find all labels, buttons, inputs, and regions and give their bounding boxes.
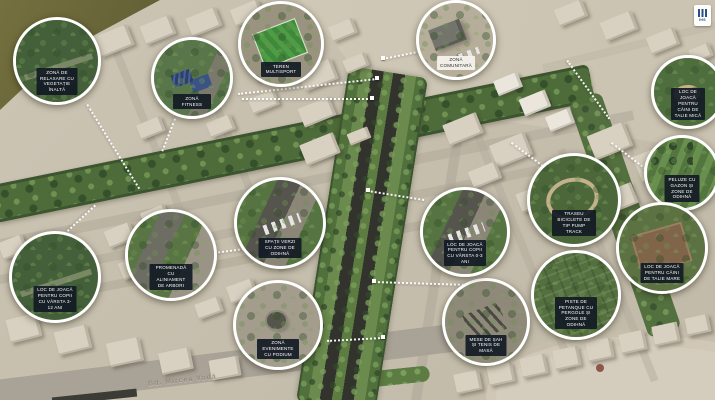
callout-label: ZONĂ DE RELAXARE CU VEGETAȚIE ÎNALTĂ	[37, 68, 78, 94]
masterplan-stage: Bd. Mircea Vodă ZONĂ DE RELAXARE CU VEGE…	[0, 0, 715, 400]
detail-callout: ZONĂ COMUNITARĂ	[416, 0, 496, 80]
detail-callout: MESE DE ȘAH ȘI TENIS DE MASĂ	[442, 278, 530, 366]
detail-callout: LOC DE JOACĂ PENTRU CÂINI DE TALIE MARE	[616, 202, 708, 294]
callout-label: ZONĂ FITNESS	[173, 94, 211, 109]
callout-label: SPAȚII VERZI CU ZONE DE ODIHNĂ	[259, 238, 302, 259]
detail-callout: TRASEU BICICLETE DE TIP PUMP TRACK	[527, 153, 621, 247]
callout-label: LOC DE JOACĂ PENTRU COPII CU VÂRSTA 3-12…	[34, 286, 77, 312]
callout-label: TEREN MULTISPORT	[261, 62, 301, 77]
logo-caption: IHS	[699, 18, 706, 22]
logo-icon	[698, 9, 707, 17]
callout-label: ZONĂ COMUNITARĂ	[437, 56, 475, 71]
detail-callout: PISTE DE PETANQUE CU PERGOLE ȘI ZONE DE …	[531, 250, 621, 340]
callout-label: MESE DE ȘAH ȘI TENIS DE MASĂ	[466, 335, 507, 356]
detail-callout: LOC DE JOACĂ PENTRU CÂINI DE TALIE MICĂ	[651, 55, 715, 129]
detail-callout: PELUZE CU GAZON ȘI ZONE DE ODIHNĂ	[644, 135, 715, 211]
callouts-layer: ZONĂ DE RELAXARE CU VEGETAȚIE ÎNALTĂ ZON…	[0, 0, 715, 400]
detail-callout: ZONĂ FITNESS	[151, 37, 233, 119]
callout-label: PROMENADĂ CU ALINIAMENT DE ARBORI	[150, 264, 193, 290]
detail-callout: LOC DE JOACĂ PENTRU COPII CU VÂRSTA 3-12…	[9, 231, 101, 323]
detail-callout: SPAȚII VERZI CU ZONE DE ODIHNĂ	[234, 177, 326, 269]
callout-label: PISTE DE PETANQUE CU PERGOLE ȘI ZONE DE …	[555, 297, 597, 329]
detail-callout: LOC DE JOACĂ PENTRU COPII CU VÂRSTA 0-3 …	[420, 187, 510, 277]
callout-label: TRASEU BICICLETE DE TIP PUMP TRACK	[552, 210, 596, 236]
logo-badge: IHS	[694, 5, 711, 26]
detail-callout: PROMENADĂ CU ALINIAMENT DE ARBORI	[125, 209, 217, 301]
detail-callout: ZONĂ DE RELAXARE CU VEGETAȚIE ÎNALTĂ	[13, 17, 101, 105]
callout-label: LOC DE JOACĂ PENTRU COPII CU VÂRSTA 0-3 …	[444, 240, 486, 266]
detail-callout: ZONĂ EVENIMENTE CU PODIUM	[233, 280, 323, 370]
detail-callout: TEREN MULTISPORT	[238, 1, 324, 87]
callout-label: LOC DE JOACĂ PENTRU CÂINI DE TALIE MARE	[641, 263, 684, 284]
callout-label: ZONĂ EVENIMENTE CU PODIUM	[257, 339, 299, 360]
callout-label: LOC DE JOACĂ PENTRU CÂINI DE TALIE MICĂ	[671, 88, 705, 120]
callout-label: PELUZE CU GAZON ȘI ZONE DE ODIHNĂ	[665, 175, 700, 201]
